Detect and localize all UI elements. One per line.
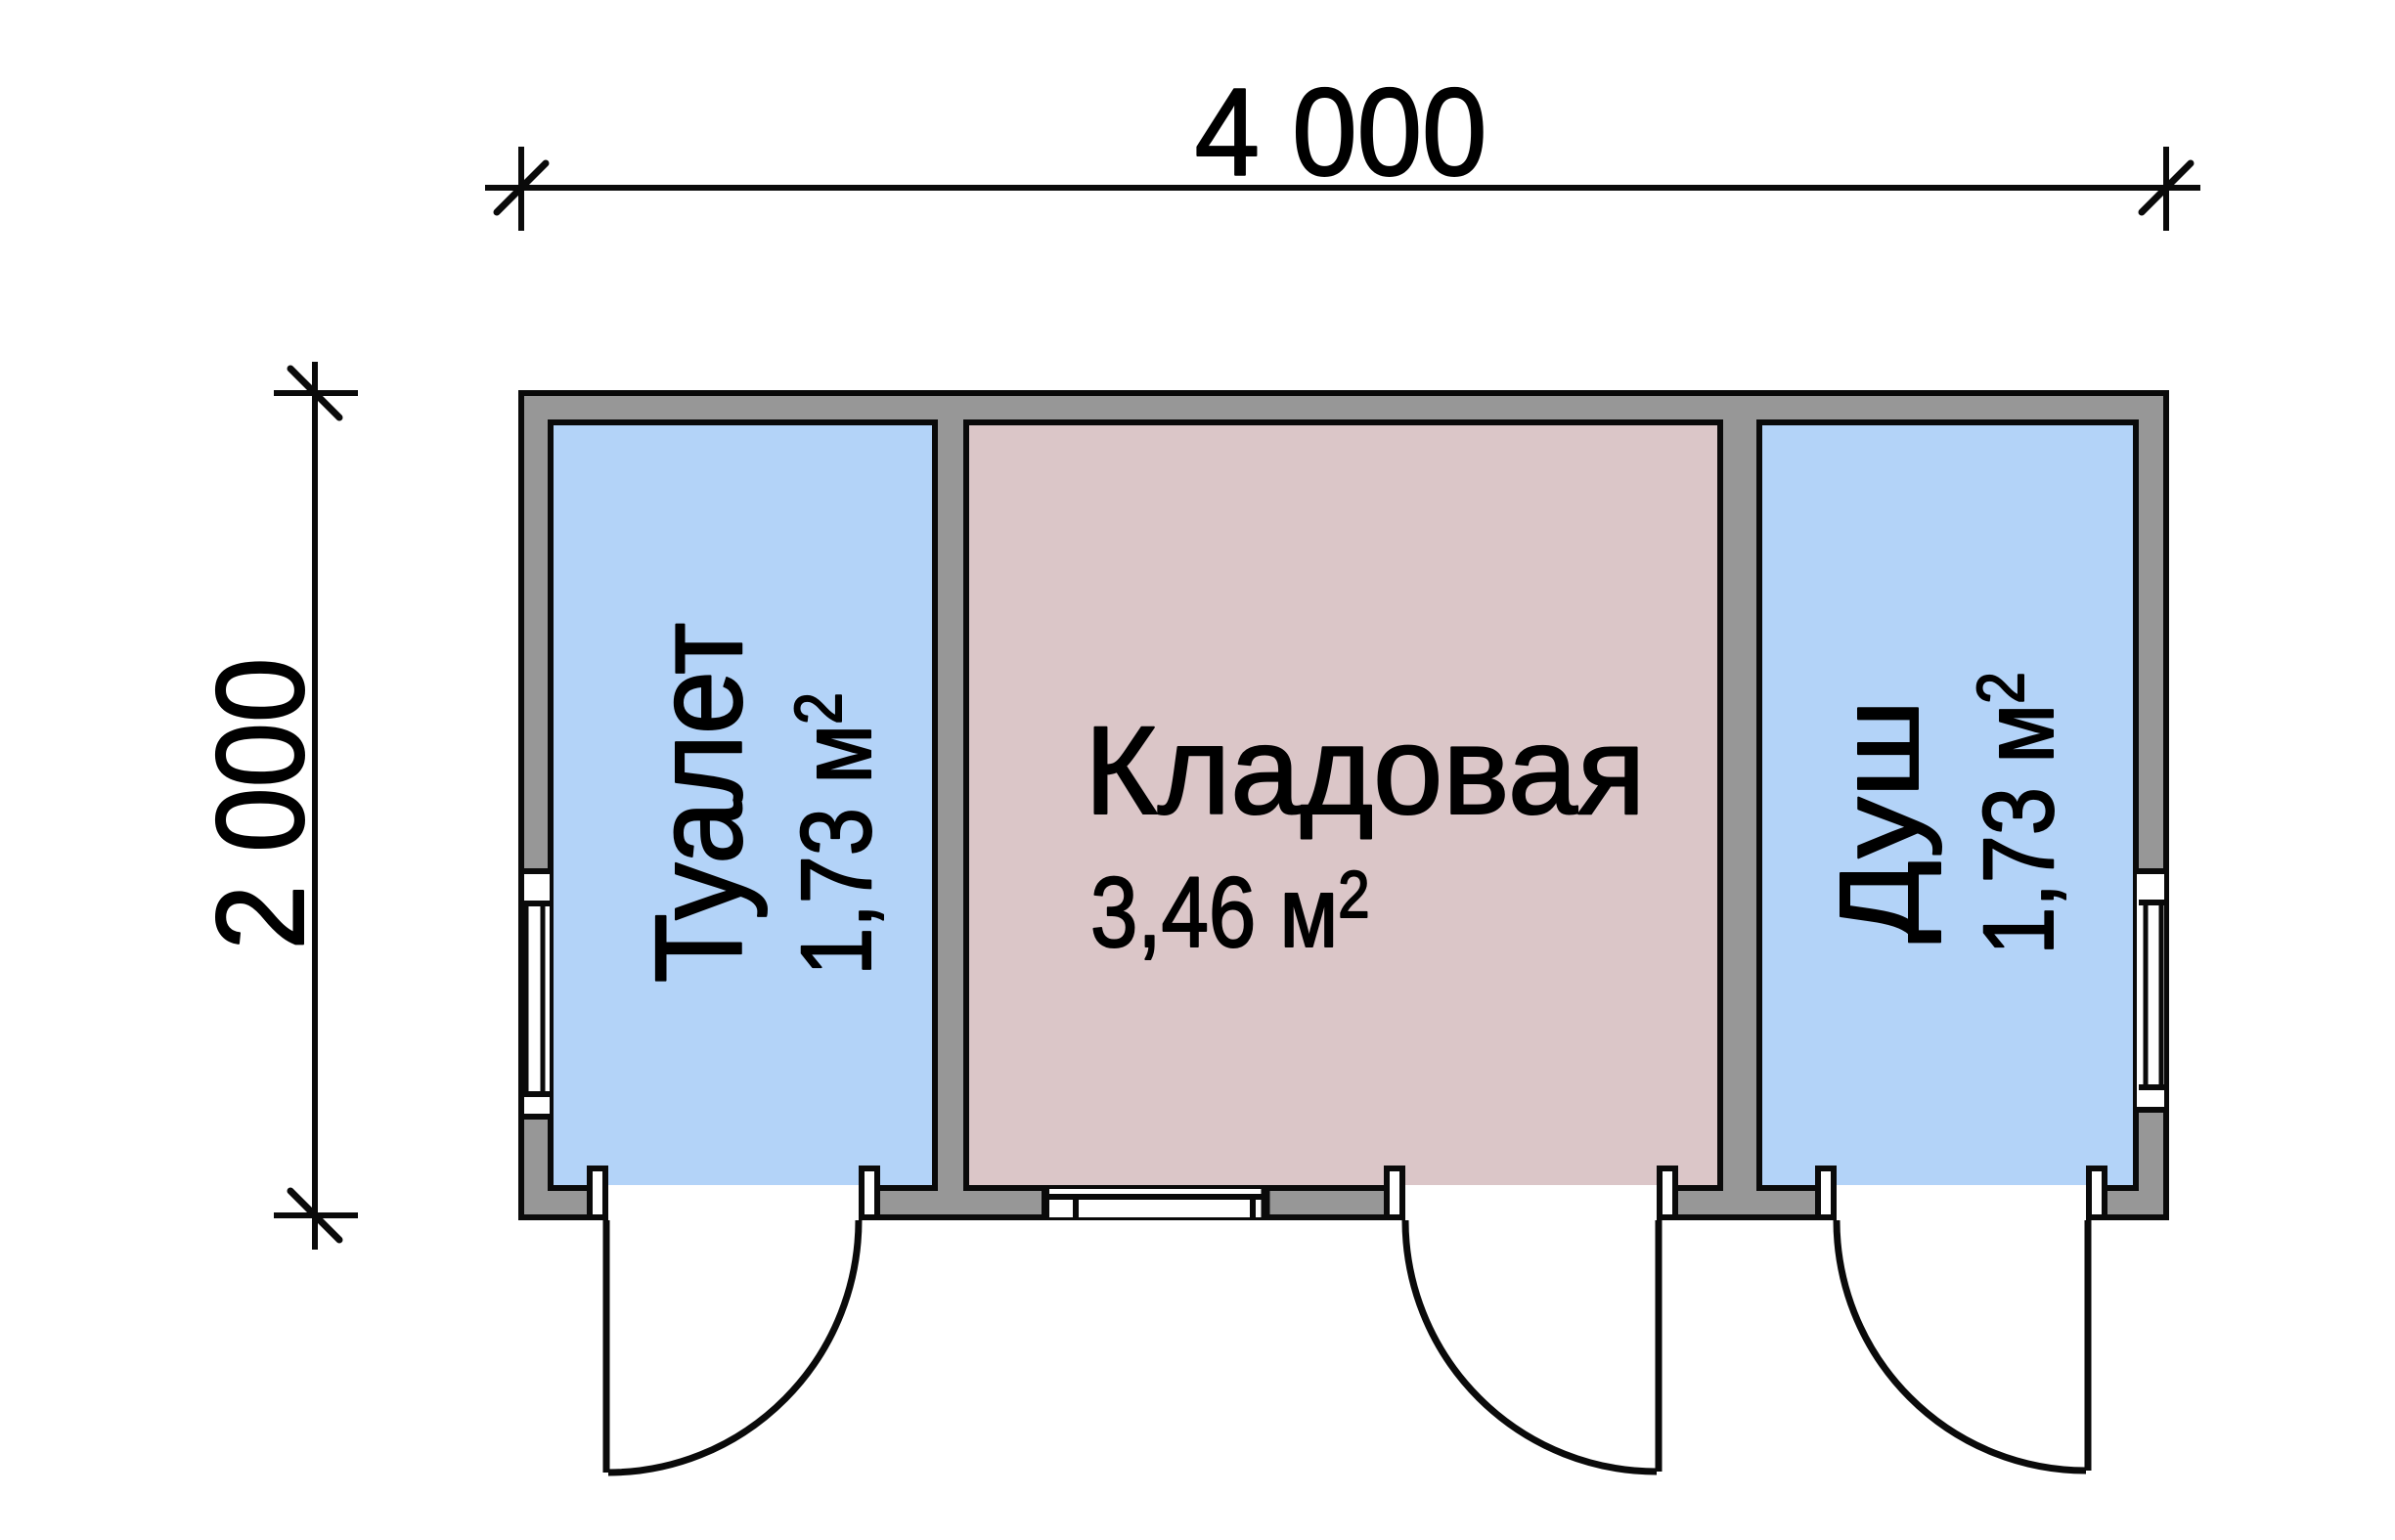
svg-text:3,46 м2: 3,46 м2 [1090, 858, 1370, 969]
svg-text:Душ: Душ [1817, 700, 1942, 944]
svg-text:Кладовая: Кладовая [1085, 701, 1645, 841]
svg-text:1,73 м2: 1,73 м2 [781, 692, 892, 976]
svg-text:1,73 м2: 1,73 м2 [1964, 672, 2074, 955]
svg-text:2 000: 2 000 [192, 658, 331, 950]
svg-text:4 000: 4 000 [1195, 64, 1487, 202]
svg-text:Туалет: Туалет [630, 623, 768, 984]
